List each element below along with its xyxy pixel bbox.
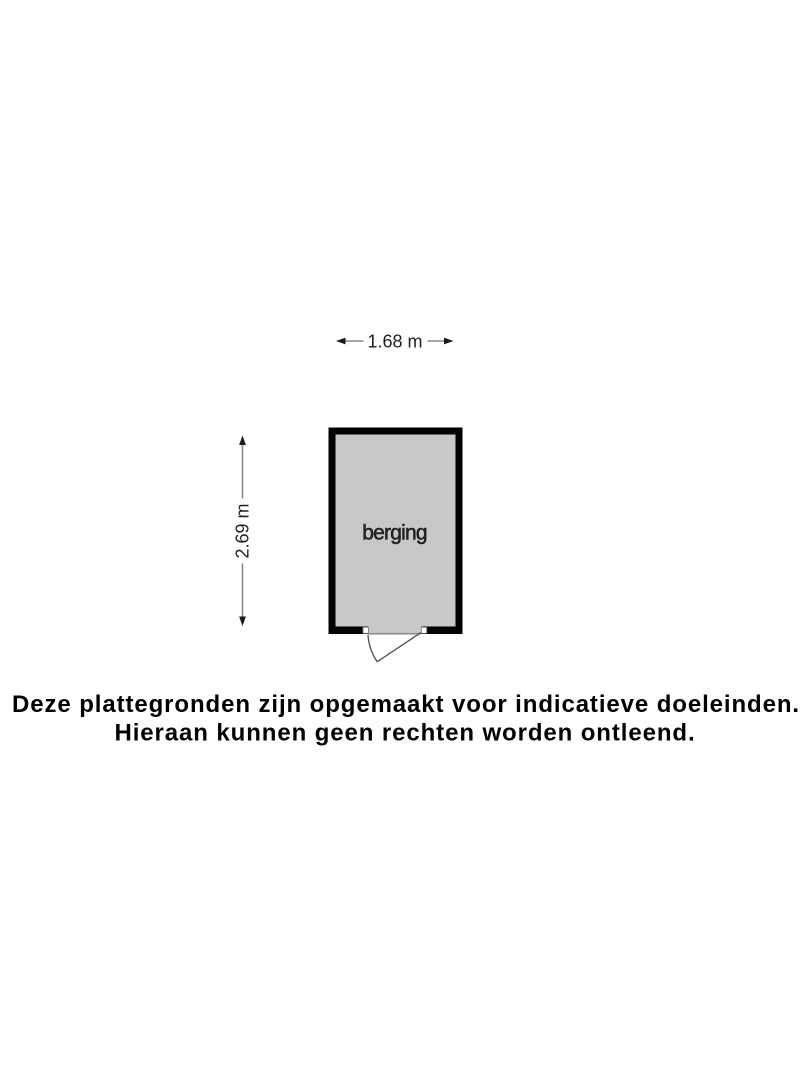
svg-text:1.68 m: 1.68 m bbox=[367, 332, 422, 352]
svg-text:berging: berging bbox=[362, 522, 427, 545]
svg-text:Hieraan kunnen geen rechten wo: Hieraan kunnen geen rechten worden ontle… bbox=[114, 720, 695, 747]
svg-text:Deze plattegronden zijn opgema: Deze plattegronden zijn opgemaakt voor i… bbox=[12, 691, 800, 718]
svg-text:2.69 m: 2.69 m bbox=[233, 503, 253, 558]
